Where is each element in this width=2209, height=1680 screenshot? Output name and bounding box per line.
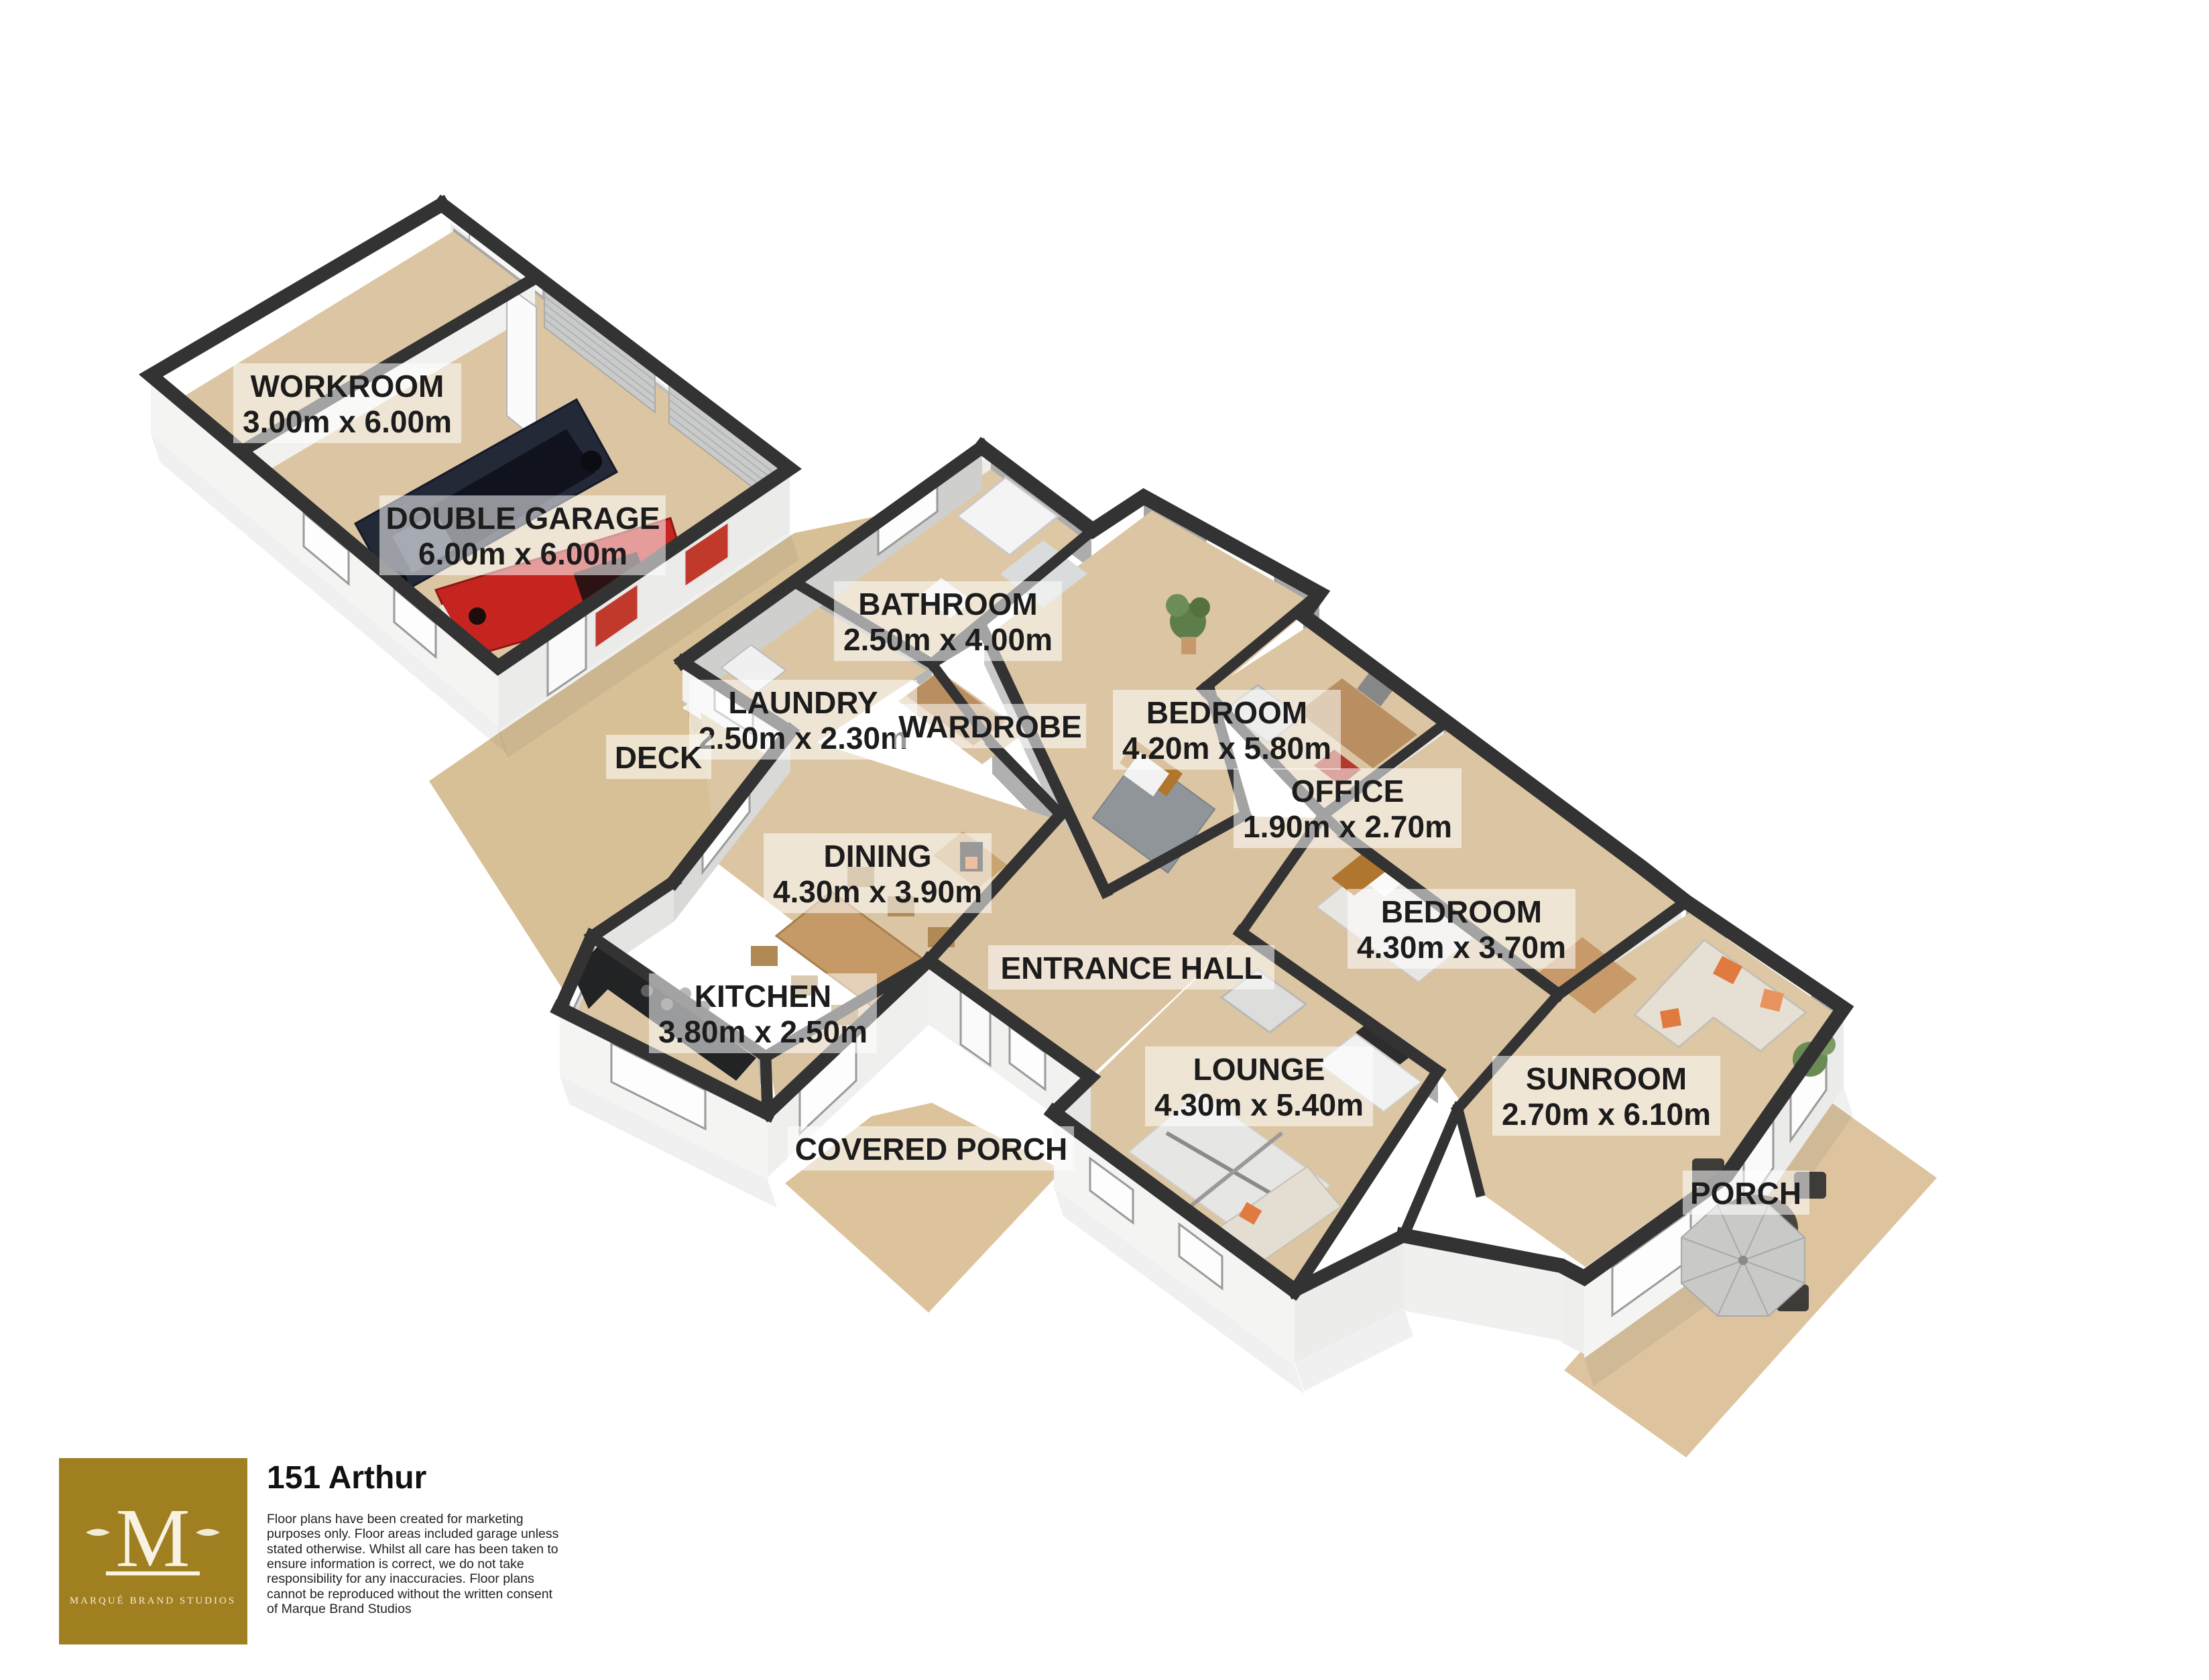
svg-text:responsibility for any inaccur: responsibility for any inaccuracies. Flo…	[267, 1571, 534, 1586]
svg-text:DOUBLE GARAGE: DOUBLE GARAGE	[386, 501, 660, 536]
svg-text:LOUNGE: LOUNGE	[1193, 1052, 1325, 1087]
svg-text:purposes only. Floor areas inc: purposes only. Floor areas included gara…	[267, 1526, 559, 1541]
svg-text:DINING: DINING	[824, 839, 932, 874]
svg-text:ENTRANCE HALL: ENTRANCE HALL	[1001, 951, 1263, 985]
svg-text:4.30m x 5.40m: 4.30m x 5.40m	[1154, 1087, 1364, 1122]
svg-text:2.50m x 4.00m: 2.50m x 4.00m	[843, 622, 1053, 657]
svg-text:BEDROOM: BEDROOM	[1381, 894, 1542, 929]
svg-text:M: M	[115, 1492, 190, 1585]
svg-text:BATHROOM: BATHROOM	[858, 587, 1037, 621]
svg-text:SUNROOM: SUNROOM	[1526, 1061, 1687, 1096]
svg-text:3.00m x 6.00m: 3.00m x 6.00m	[243, 404, 452, 439]
svg-text:3.80m x 2.50m: 3.80m x 2.50m	[658, 1014, 868, 1049]
svg-text:PORCH: PORCH	[1690, 1176, 1801, 1211]
svg-text:stated otherwise. Whilst all c: stated otherwise. Whilst all care has be…	[267, 1542, 558, 1557]
svg-text:BEDROOM: BEDROOM	[1146, 695, 1307, 730]
svg-text:4.20m x 5.80m: 4.20m x 5.80m	[1122, 731, 1331, 766]
svg-text:Floor plans have been created: Floor plans have been created for market…	[267, 1512, 524, 1526]
svg-text:151 Arthur: 151 Arthur	[267, 1460, 426, 1496]
svg-text:WARDROBE: WARDROBE	[898, 709, 1081, 744]
svg-text:LAUNDRY: LAUNDRY	[728, 685, 878, 720]
svg-text:4.30m x 3.90m: 4.30m x 3.90m	[773, 874, 982, 909]
svg-text:DECK: DECK	[615, 740, 702, 775]
svg-text:MARQUÉ BRAND STUDIOS: MARQUÉ BRAND STUDIOS	[70, 1595, 236, 1606]
svg-text:cannot be reproduced without t: cannot be reproduced without the written…	[267, 1587, 553, 1602]
svg-text:WORKROOM: WORKROOM	[251, 369, 444, 404]
svg-text:of Marque Brand Studios: of Marque Brand Studios	[267, 1602, 412, 1616]
svg-text:4.30m x 3.70m: 4.30m x 3.70m	[1357, 930, 1566, 965]
svg-text:2.50m x 2.30m: 2.50m x 2.30m	[699, 721, 908, 756]
svg-text:6.00m x 6.00m: 6.00m x 6.00m	[418, 536, 628, 571]
svg-text:1.90m x 2.70m: 1.90m x 2.70m	[1243, 809, 1452, 844]
svg-text:COVERED PORCH: COVERED PORCH	[795, 1132, 1067, 1166]
svg-text:ensure information is correct,: ensure information is correct, we do not…	[267, 1557, 524, 1571]
svg-text:KITCHEN: KITCHEN	[695, 979, 831, 1014]
svg-text:OFFICE: OFFICE	[1291, 774, 1405, 808]
svg-text:2.70m x 6.10m: 2.70m x 6.10m	[1502, 1097, 1711, 1132]
